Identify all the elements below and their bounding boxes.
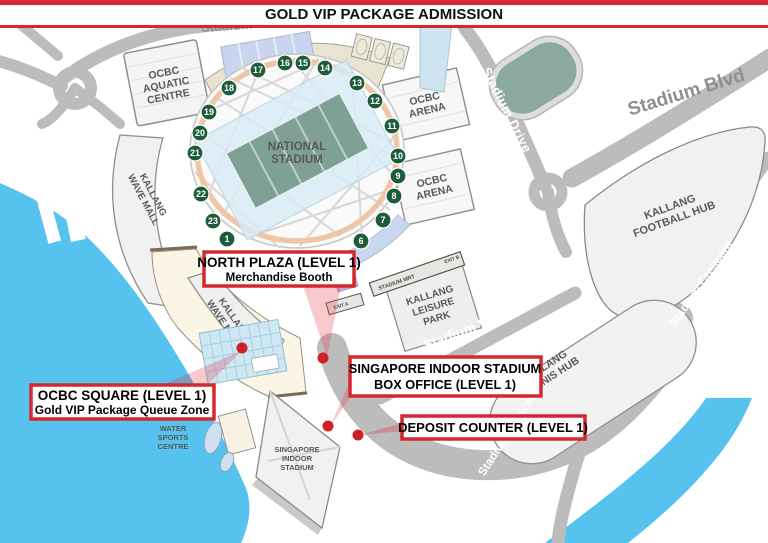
svg-text:12: 12 xyxy=(370,96,380,106)
gate-marker-22: 22 xyxy=(193,186,209,202)
svg-text:9: 9 xyxy=(395,171,400,181)
gate-marker-23: 23 xyxy=(205,213,221,229)
svg-text:19: 19 xyxy=(204,107,214,117)
svg-text:16: 16 xyxy=(280,58,290,68)
svg-text:CENTRE: CENTRE xyxy=(158,442,189,451)
svg-text:20: 20 xyxy=(195,128,205,138)
callout-box-office: SINGAPORE INDOOR STADIUM BOX OFFICE (LEV… xyxy=(349,357,541,396)
building-ocbc-aquatic-centre: OCBC AQUATIC CENTRE xyxy=(123,39,210,126)
indoor-stadium-label: SINGAPORE xyxy=(274,445,319,454)
svg-text:STADIUM: STADIUM xyxy=(271,154,323,166)
deposit-counter-dot xyxy=(353,430,364,441)
svg-text:21: 21 xyxy=(190,148,200,158)
gate-marker-20: 20 xyxy=(192,125,208,141)
gate-marker-16: 16 xyxy=(277,55,293,71)
callout-north-plaza: NORTH PLAZA (LEVEL 1) Merchandise Booth xyxy=(197,252,361,286)
svg-text:Merchandise Booth: Merchandise Booth xyxy=(226,272,333,284)
box-office-dot xyxy=(323,421,334,432)
svg-text:Gold VIP Package Queue Zone: Gold VIP Package Queue Zone xyxy=(35,403,210,417)
svg-text:22: 22 xyxy=(196,189,206,199)
stadium-map: OCBC AQUATIC CENTRE KALLANG WAVE MALL KA… xyxy=(0,0,768,543)
gate-marker-1: 1 xyxy=(219,231,235,247)
svg-text:STADIUM: STADIUM xyxy=(280,463,314,472)
svg-text:13: 13 xyxy=(352,78,362,88)
svg-text:10: 10 xyxy=(393,151,403,161)
gate-marker-11: 11 xyxy=(384,118,400,134)
water-sports-label: WATER xyxy=(160,424,187,433)
svg-text:BOX OFFICE (LEVEL 1): BOX OFFICE (LEVEL 1) xyxy=(374,377,516,392)
building-singapore-indoor-stadium: SINGAPORE INDOOR STADIUM xyxy=(252,391,340,535)
north-plaza-dot xyxy=(318,353,329,364)
gate-marker-12: 12 xyxy=(367,93,383,109)
callout-deposit-counter: DEPOSIT COUNTER (LEVEL 1) xyxy=(398,416,588,439)
gate-marker-17: 17 xyxy=(250,62,266,78)
gate-marker-13: 13 xyxy=(349,75,365,91)
gate-marker-21: 21 xyxy=(187,145,203,161)
svg-text:14: 14 xyxy=(320,63,330,73)
admission-banner-title: GOLD VIP PACKAGE ADMISSION xyxy=(265,6,503,23)
svg-text:11: 11 xyxy=(387,121,397,131)
gate-marker-18: 18 xyxy=(221,80,237,96)
gate-marker-8: 8 xyxy=(386,188,402,204)
svg-text:7: 7 xyxy=(380,215,385,225)
svg-text:15: 15 xyxy=(298,58,308,68)
gate-marker-7: 7 xyxy=(375,212,391,228)
callout-ocbc-square: OCBC SQUARE (LEVEL 1) Gold VIP Package Q… xyxy=(31,385,214,419)
svg-text:DEPOSIT COUNTER (LEVEL 1): DEPOSIT COUNTER (LEVEL 1) xyxy=(398,420,588,435)
svg-text:17: 17 xyxy=(253,65,263,75)
gate-marker-19: 19 xyxy=(201,104,217,120)
gate-marker-15: 15 xyxy=(295,55,311,71)
svg-text:23: 23 xyxy=(208,216,218,226)
venue-map-page: OCBC AQUATIC CENTRE KALLANG WAVE MALL KA… xyxy=(0,0,768,543)
svg-text:18: 18 xyxy=(224,83,234,93)
ocbc-square-dot xyxy=(237,343,248,354)
svg-text:SINGAPORE INDOOR STADIUM: SINGAPORE INDOOR STADIUM xyxy=(349,361,541,376)
svg-text:OCBC SQUARE (LEVEL 1): OCBC SQUARE (LEVEL 1) xyxy=(38,388,207,403)
svg-text:SPORTS: SPORTS xyxy=(158,433,189,442)
gate-marker-6: 6 xyxy=(353,233,369,249)
svg-text:8: 8 xyxy=(391,191,396,201)
admission-banner: GOLD VIP PACKAGE ADMISSION xyxy=(0,0,768,28)
svg-text:NORTH PLAZA (LEVEL 1): NORTH PLAZA (LEVEL 1) xyxy=(197,255,361,270)
svg-text:1: 1 xyxy=(224,234,229,244)
gate-marker-9: 9 xyxy=(390,168,406,184)
svg-text:INDOOR: INDOOR xyxy=(282,454,313,463)
gate-marker-10: 10 xyxy=(390,148,406,164)
svg-text:6: 6 xyxy=(358,236,363,246)
gate-marker-14: 14 xyxy=(317,60,333,76)
national-stadium-label: NATIONAL xyxy=(268,141,327,153)
